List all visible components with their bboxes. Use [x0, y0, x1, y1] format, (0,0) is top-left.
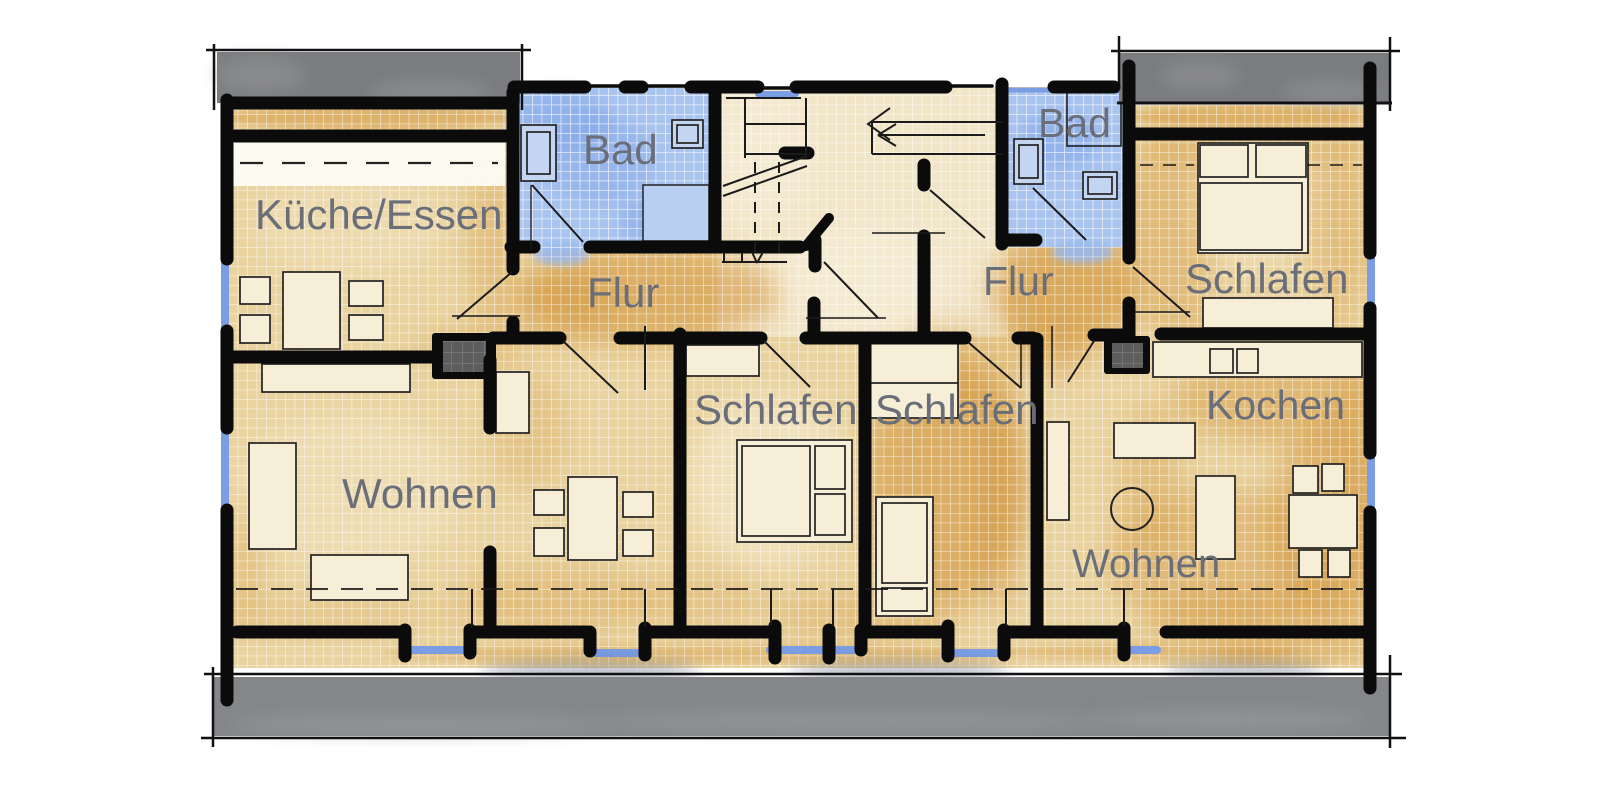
svg-text:Bad: Bad	[583, 126, 658, 173]
svg-text:Schlafen: Schlafen	[694, 386, 857, 433]
svg-text:Wohnen: Wohnen	[1072, 542, 1220, 586]
svg-text:Schlafen: Schlafen	[1185, 255, 1348, 302]
svg-text:Küche/Essen: Küche/Essen	[255, 191, 503, 238]
svg-text:Kochen: Kochen	[1206, 382, 1345, 428]
svg-text:Flur: Flur	[587, 269, 659, 316]
svg-text:Bad: Bad	[1038, 100, 1111, 146]
svg-text:Flur: Flur	[983, 258, 1054, 304]
svg-text:Schlafen: Schlafen	[875, 386, 1038, 433]
svg-text:Wohnen: Wohnen	[342, 470, 498, 517]
